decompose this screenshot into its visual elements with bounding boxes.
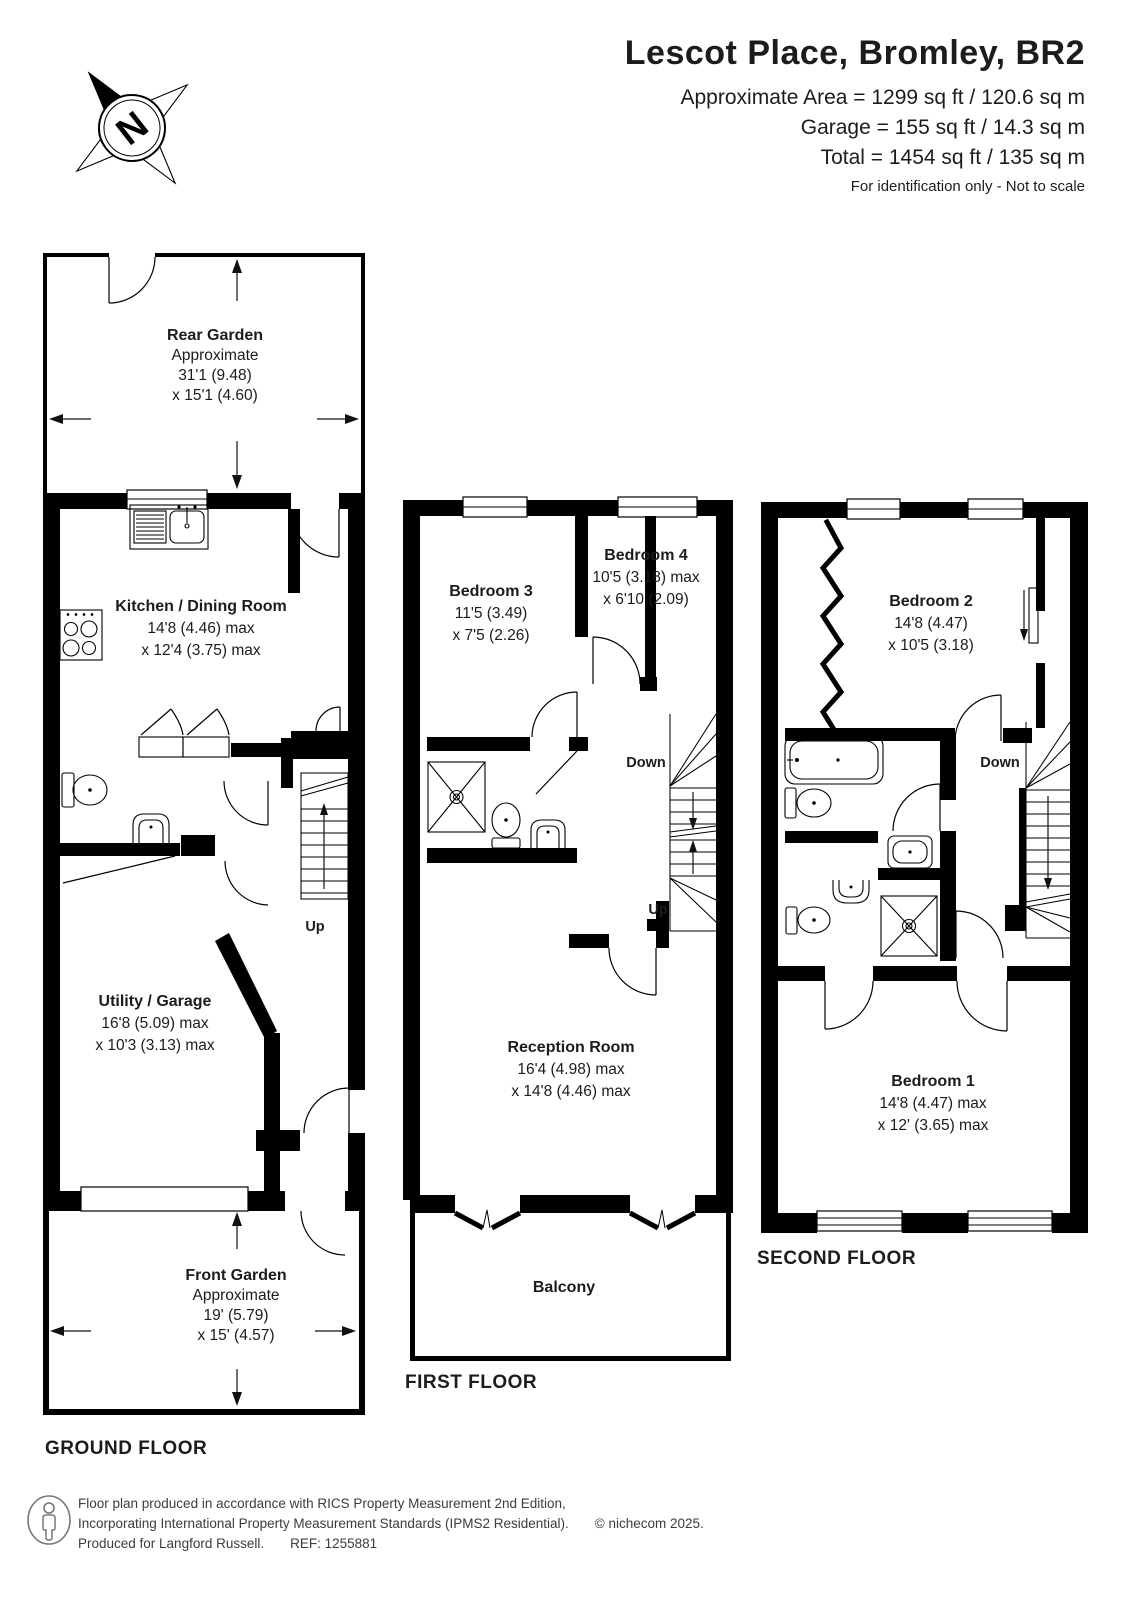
bedroom4-door-arc xyxy=(593,637,640,684)
ensuite-shower xyxy=(881,896,937,956)
wardrobe-doors xyxy=(823,522,841,728)
bathroom-door-arc xyxy=(893,784,940,831)
footer-ref: REF: 1255881 xyxy=(290,1536,377,1551)
side-door-arc xyxy=(304,1088,349,1133)
room-bedroom1: Bedroom 1 14'8 (4.47) max x 12' (3.65) m… xyxy=(878,1073,989,1134)
second-floor-plan: Bedroom 2 14'8 (4.47) x 10'5 (3.18) xyxy=(753,486,1088,1246)
ground-floor-caption: GROUND FLOOR xyxy=(45,1438,207,1460)
svg-text:19' (5.79): 19' (5.79) xyxy=(204,1307,269,1324)
header: Lescot Place, Bromley, BR2 Approximate A… xyxy=(625,34,1085,195)
footer-line1: Floor plan produced in accordance with R… xyxy=(78,1496,566,1511)
room-bedroom4: Bedroom 4 10'5 (3.18) max x 6'10 (2.09) xyxy=(592,547,699,608)
wc-door-arc xyxy=(224,781,268,825)
room-kitchen: Kitchen / Dining Room 14'8 (4.46) max x … xyxy=(115,598,287,659)
room-front-garden: Front Garden Approximate 19' (5.79) x 15… xyxy=(185,1267,286,1344)
svg-text:x 15'1 (4.60): x 15'1 (4.60) xyxy=(172,387,258,404)
bathtub xyxy=(785,736,883,784)
shower-room-basin xyxy=(531,820,565,848)
kitchen-bifold-doors xyxy=(139,709,229,757)
svg-text:14'8 (4.46) max: 14'8 (4.46) max xyxy=(147,620,254,637)
second-stairs-down-label: Down xyxy=(980,755,1019,771)
svg-text:31'1 (9.48): 31'1 (9.48) xyxy=(178,367,252,384)
first-stairs xyxy=(670,714,716,931)
footer-line3: Produced for Langford Russell. xyxy=(78,1536,264,1551)
svg-text:Kitchen / Dining Room: Kitchen / Dining Room xyxy=(115,598,287,615)
ensuite-toilet xyxy=(786,907,830,934)
hall-door-arc xyxy=(316,707,340,731)
area-total-line: Approximate Area = 1299 sq ft / 120.6 sq… xyxy=(625,83,1085,113)
bathroom-basin xyxy=(888,836,932,868)
second-stairs xyxy=(1026,722,1070,938)
svg-text:x 10'5 (3.18): x 10'5 (3.18) xyxy=(888,637,974,654)
svg-text:16'8 (5.09) max: 16'8 (5.09) max xyxy=(101,1015,208,1032)
svg-text:x 14'8 (4.46) max: x 14'8 (4.46) max xyxy=(511,1083,631,1100)
svg-text:Bedroom 4: Bedroom 4 xyxy=(604,547,688,564)
area-sum-line: Total = 1454 sq ft / 135 sq m xyxy=(625,143,1085,173)
ensuite-basin xyxy=(833,880,869,903)
page-title: Lescot Place, Bromley, BR2 xyxy=(625,34,1085,73)
room-bedroom3: Bedroom 3 11'5 (3.49) x 7'5 (2.26) xyxy=(449,583,533,644)
bathroom-toilet xyxy=(785,788,831,818)
svg-text:16'4 (4.98) max: 16'4 (4.98) max xyxy=(517,1061,624,1078)
svg-text:x 15' (4.57): x 15' (4.57) xyxy=(197,1327,274,1344)
svg-text:x 12'4 (3.75) max: x 12'4 (3.75) max xyxy=(141,642,261,659)
shower-room-toilet xyxy=(492,803,520,848)
room-balcony: Balcony xyxy=(533,1279,595,1296)
front-door-arc xyxy=(301,1211,345,1255)
sliding-door xyxy=(1020,588,1038,643)
svg-text:Approximate: Approximate xyxy=(192,1287,279,1304)
second-floor-caption: SECOND FLOOR xyxy=(757,1248,916,1270)
utility-door-arc xyxy=(63,856,268,905)
floorplan-page: N Lescot Place, Bromley, BR2 Approximate… xyxy=(0,0,1131,1599)
svg-text:Front Garden: Front Garden xyxy=(185,1267,286,1284)
kitchen-sink xyxy=(130,505,208,549)
first-stairs-up-label: Up xyxy=(648,902,667,918)
svg-text:Approximate: Approximate xyxy=(171,347,258,364)
compass-icon: N xyxy=(50,52,214,204)
ground-stairs xyxy=(301,773,348,899)
room-reception: Reception Room 16'4 (4.98) max x 14'8 (4… xyxy=(507,1039,634,1100)
scale-disclaimer: For identification only - Not to scale xyxy=(625,178,1085,195)
room-utility: Utility / Garage 16'8 (5.09) max x 10'3 … xyxy=(95,993,215,1054)
svg-text:Bedroom 3: Bedroom 3 xyxy=(449,583,533,600)
room-bedroom2: Bedroom 2 14'8 (4.47) x 10'5 (3.18) xyxy=(888,593,974,654)
wc-basin xyxy=(133,814,169,843)
first-floor-plan: Bedroom 3 11'5 (3.49) x 7'5 (2.26) Bedro… xyxy=(403,486,733,1370)
first-stairs-down-label: Down xyxy=(626,755,665,771)
wc-toilet xyxy=(62,773,107,807)
shower-tray xyxy=(428,762,485,832)
area-garage-line: Garage = 155 sq ft / 14.3 sq m xyxy=(625,113,1085,143)
ground-stairs-label: Up xyxy=(305,919,324,935)
reception-door-arc xyxy=(609,948,656,995)
svg-text:x 6'10 (2.09): x 6'10 (2.09) xyxy=(603,591,689,608)
footer-copyright: © nichecom 2025. xyxy=(595,1516,704,1531)
compass-star: N xyxy=(50,52,214,204)
svg-text:Bedroom 2: Bedroom 2 xyxy=(889,593,973,610)
svg-text:14'8 (4.47): 14'8 (4.47) xyxy=(894,615,968,632)
ground-floor-plan: Rear Garden Approximate 31'1 (9.48) x 15… xyxy=(43,243,365,1418)
svg-text:x 10'3 (3.13) max: x 10'3 (3.13) max xyxy=(95,1037,215,1054)
svg-text:11'5 (3.49): 11'5 (3.49) xyxy=(455,605,527,622)
svg-text:Rear Garden: Rear Garden xyxy=(167,327,263,344)
svg-text:x 12' (3.65) max: x 12' (3.65) max xyxy=(878,1117,989,1134)
bedroom1-door-arcs xyxy=(825,981,1007,1031)
svg-text:10'5 (3.18) max: 10'5 (3.18) max xyxy=(592,569,699,586)
first-floor-caption: FIRST FLOOR xyxy=(405,1372,537,1394)
person-icon xyxy=(26,1492,74,1550)
svg-text:14'8 (4.47) max: 14'8 (4.47) max xyxy=(879,1095,986,1112)
ensuite-door-arc xyxy=(956,911,1003,958)
svg-text:Bedroom 1: Bedroom 1 xyxy=(891,1073,975,1090)
svg-text:Reception Room: Reception Room xyxy=(507,1039,634,1056)
footer-text: Floor plan produced in accordance with R… xyxy=(78,1494,704,1554)
svg-text:x 7'5 (2.26): x 7'5 (2.26) xyxy=(452,627,529,644)
footer-line2: Incorporating International Property Mea… xyxy=(78,1516,569,1531)
stove xyxy=(60,610,102,660)
garden-gate-arc xyxy=(109,257,155,303)
svg-text:Utility / Garage: Utility / Garage xyxy=(99,993,212,1010)
bedroom2-door-arc xyxy=(955,695,1001,741)
room-rear-garden: Rear Garden Approximate 31'1 (9.48) x 15… xyxy=(167,327,263,404)
garage-door xyxy=(73,1187,256,1211)
